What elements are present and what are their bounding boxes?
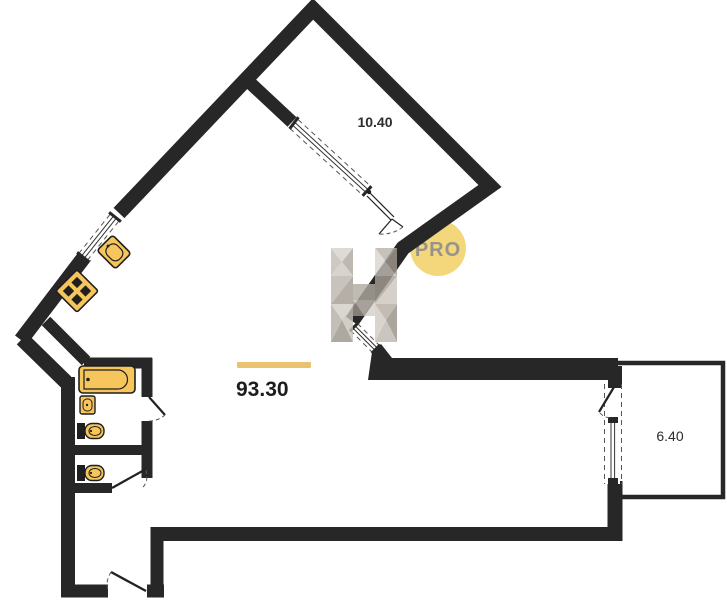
bathtub <box>79 366 135 393</box>
washbasin <box>80 396 95 414</box>
floor-plan-canvas: PRO <box>0 0 727 600</box>
area-accent-bar <box>237 362 311 368</box>
room-area-label-balcony: 6.40 <box>656 428 683 444</box>
room-area-label-living: 93.30 <box>236 378 289 401</box>
entrance-door <box>107 572 146 591</box>
main-area-label: 93.30 <box>236 362 311 401</box>
exterior-walls <box>21 9 618 597</box>
h-logo-watermark <box>331 248 397 342</box>
wall <box>247 80 292 122</box>
room-area-label-bedroom: 10.40 <box>357 114 392 130</box>
bedroom-door <box>367 190 403 234</box>
balcony-door <box>599 387 614 418</box>
toilet <box>77 423 104 439</box>
bathroom-door <box>149 397 165 421</box>
wc-door <box>112 469 147 488</box>
floor-plan-page: PRO <box>0 0 727 600</box>
wall <box>22 339 66 382</box>
toilet <box>77 465 104 481</box>
wall <box>46 321 86 361</box>
